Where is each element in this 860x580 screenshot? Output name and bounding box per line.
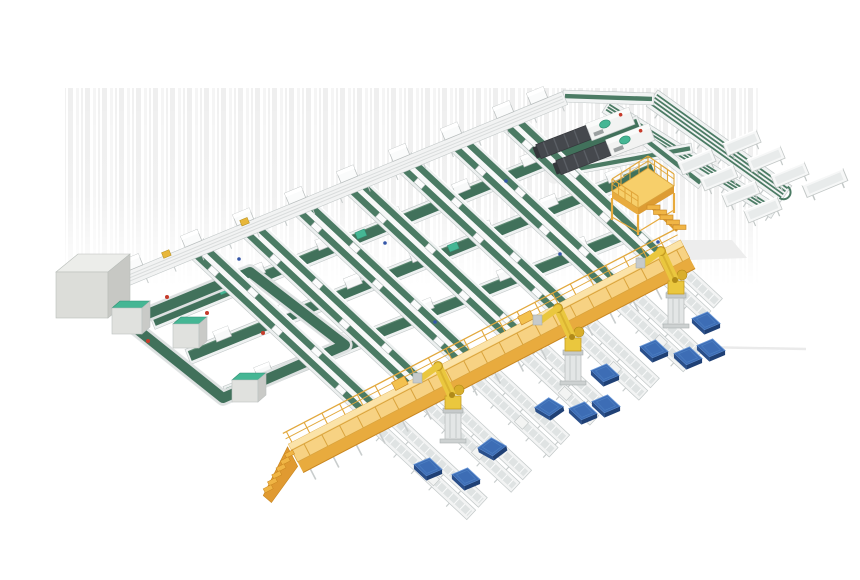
status-marker-blue <box>237 257 241 261</box>
status-marker-blue <box>504 179 508 183</box>
status-marker-blue <box>656 240 660 244</box>
status-marker-blue <box>383 241 387 245</box>
teal-top-cabinet <box>232 373 266 402</box>
facility-3d-render <box>0 0 860 580</box>
status-marker-blue <box>433 320 437 324</box>
status-marker-red <box>165 295 169 299</box>
status-marker-red <box>205 311 209 315</box>
status-marker-blue <box>558 252 562 256</box>
status-marker-red <box>146 339 150 343</box>
facility-render-stage <box>0 0 860 580</box>
teal-top-cabinet <box>112 301 150 334</box>
status-marker-red <box>261 331 265 335</box>
teal-top-cabinet <box>173 317 207 348</box>
